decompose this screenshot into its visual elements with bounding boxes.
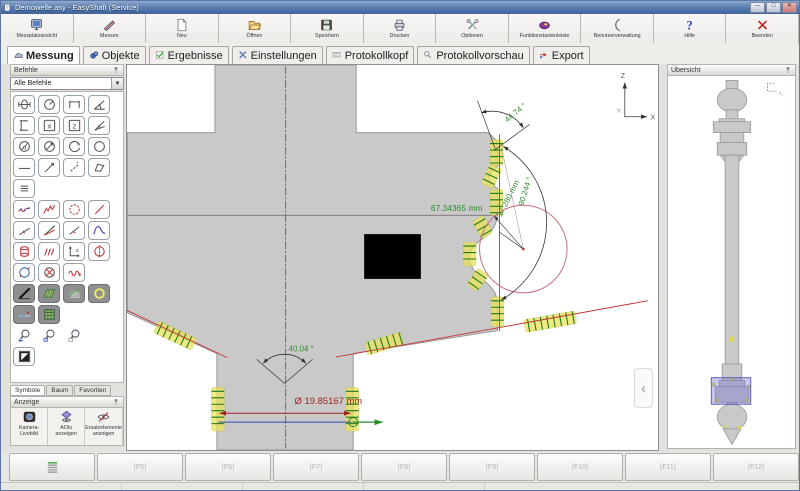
- save-floppy-icon: [319, 18, 334, 32]
- tool-table-button[interactable]: [38, 305, 60, 324]
- function-key-button-4[interactable]: (F8): [361, 453, 447, 481]
- commands-panel-title: Befehle: [14, 67, 38, 74]
- tool-contrast-button[interactable]: [13, 347, 35, 366]
- help-icon: ?: [682, 18, 697, 32]
- tool-midline-button[interactable]: [63, 221, 85, 240]
- dim-angle-arc-label: 90.244 °: [517, 176, 534, 207]
- display-button-kamera[interactable]: Kamera-Livebild: [11, 408, 48, 445]
- tool-ring-button[interactable]: [88, 284, 110, 303]
- perpline-icon: [17, 223, 32, 238]
- profile-icon: [42, 202, 57, 217]
- aoi-eye-icon: [59, 410, 74, 424]
- tool-row: [13, 284, 123, 303]
- tool-circle-arc-button[interactable]: [63, 137, 85, 156]
- tool-row: [13, 326, 123, 345]
- eval-icon: e: [17, 307, 32, 322]
- circle-icon: [92, 139, 107, 154]
- monitor-icon: [29, 18, 44, 32]
- export-tab-icon: [539, 50, 550, 61]
- printer-icon: [392, 18, 407, 32]
- tool-peak-button[interactable]: [88, 221, 110, 240]
- tool-height-button[interactable]: [13, 116, 35, 135]
- tool-crosscircle-button[interactable]: [38, 263, 60, 282]
- tool-hline-button[interactable]: [13, 158, 35, 177]
- posz-icon: z: [67, 118, 82, 133]
- user-admin-icon: [610, 18, 625, 32]
- toolbar-button-drucken[interactable]: Drucken: [364, 14, 437, 43]
- status-segment: [364, 483, 485, 491]
- dim-diameter-label: Ø 19.85167 mm: [295, 396, 363, 407]
- tool-angle2-button[interactable]: [88, 116, 110, 135]
- title-bar: Demowelle.asy - EasyShaft (Service) ─□✕: [1, 1, 799, 14]
- command-filter-dropdown[interactable]: Alle Befehle ▼: [10, 77, 124, 90]
- tools-icon: [465, 18, 480, 32]
- crosscircle-icon: [42, 265, 57, 280]
- pin-icon[interactable]: [112, 66, 120, 74]
- camera-aoi-rect: [364, 234, 421, 279]
- status-segment: [243, 483, 364, 491]
- tool-dashline-button[interactable]: [63, 158, 85, 177]
- overview-map[interactable]: [667, 76, 796, 449]
- function-key-button-5[interactable]: (F9): [449, 453, 535, 481]
- function-key-label: (F6): [222, 464, 235, 471]
- cylinder-icon: [17, 244, 32, 259]
- tool-row: [13, 158, 123, 177]
- objects-tab-icon: [89, 50, 100, 61]
- open-folder-icon: [247, 18, 262, 32]
- fkeys-icon: [537, 18, 552, 32]
- circle-d-icon: d: [17, 139, 32, 154]
- display-buttons: Kamera-LivebildAOIsanzeigenErsatzelement…: [10, 408, 124, 446]
- function-key-button-3[interactable]: (F7): [273, 453, 359, 481]
- toolbar-button-label: Neu: [177, 33, 187, 39]
- toolbar-button-label: Benutzerverwaltung: [594, 33, 641, 39]
- svg-text:Z: Z: [621, 73, 626, 80]
- dim-angle-top-label: 44.74 °: [503, 101, 528, 124]
- tab-export[interactable]: Export: [533, 46, 590, 64]
- table-icon: [42, 307, 57, 322]
- tab-label: Messung: [26, 50, 74, 62]
- tool-circle-button[interactable]: [88, 137, 110, 156]
- tool-spline-button[interactable]: [13, 200, 35, 219]
- tool-coordz-button[interactable]: z: [63, 242, 85, 261]
- height-icon: [17, 118, 32, 133]
- protocol-header-tab-icon: [332, 50, 343, 61]
- anglelines-icon: [42, 223, 57, 238]
- toolbar-button-beenden[interactable]: Beenden: [726, 14, 799, 43]
- layers-icon: [45, 460, 60, 475]
- toolbar-button-label: Beenden: [752, 33, 773, 39]
- display-button-label: AOIsanzeigen: [55, 425, 77, 437]
- display-button-aois[interactable]: AOIsanzeigen: [48, 408, 85, 445]
- toolbar-button-speichern[interactable]: Speichern: [291, 14, 364, 43]
- tab-protokollkopf[interactable]: Protokollkopf: [326, 46, 415, 64]
- angle-arc-90: [501, 147, 546, 300]
- tool-circle-d-button[interactable]: d: [13, 137, 35, 156]
- radius-icon: [42, 97, 57, 112]
- status-bar: [1, 482, 799, 491]
- tab-label: Objekte: [102, 50, 140, 62]
- toolbar-button-label: Drucken: [390, 33, 410, 39]
- zoomwin-icon: [42, 328, 57, 343]
- tool-angle3-button[interactable]: [88, 95, 110, 114]
- tool-zoomfit-button[interactable]: [63, 326, 85, 345]
- tool-row: [13, 347, 123, 366]
- symmetry-icon: [17, 97, 32, 112]
- tab-objekte[interactable]: Objekte: [83, 46, 146, 64]
- radius-leader-line: [494, 216, 523, 249]
- circle-diam-icon: [42, 139, 57, 154]
- function-key-label: (F9): [486, 464, 499, 471]
- zoomback-icon: [17, 328, 32, 343]
- tool-anglelines-button[interactable]: [38, 221, 60, 240]
- toolbar-button-label: Optionen: [461, 33, 483, 39]
- tool-cylinder-button[interactable]: [13, 242, 35, 261]
- tab-label: Einstellungen: [251, 50, 317, 62]
- panel-tab-symbole[interactable]: Symbole: [10, 385, 45, 396]
- svg-text:Y: Y: [617, 109, 621, 115]
- exit-icon: [755, 18, 770, 32]
- tool-row: z: [13, 242, 123, 261]
- scatter-circle-icon: [67, 202, 82, 217]
- hidden-eye-icon: [96, 410, 111, 424]
- tool-wave-button[interactable]: [63, 263, 85, 282]
- main-area: Befehle Alle Befehle ▼ xzdze SymboleBaum…: [1, 64, 800, 451]
- toolbar-button-label: Öffnen: [247, 33, 263, 39]
- tool-row: d: [13, 137, 123, 156]
- hline-icon: [17, 160, 32, 175]
- grooves-icon: [42, 244, 57, 259]
- toolbar-button-label: Funktionstastenleiste: [520, 33, 570, 39]
- tool-grid: xzdze: [10, 91, 124, 383]
- display-button-label: Kamera-Livebild: [19, 425, 39, 437]
- radius-leader-line2: [499, 232, 523, 249]
- tool-row: xz: [13, 116, 123, 135]
- pin-icon[interactable]: [784, 66, 792, 74]
- commands-panel: Befehle Alle Befehle ▼ xzdze SymboleBaum…: [10, 64, 124, 451]
- tool-grooves-button[interactable]: [38, 242, 60, 261]
- toolbar-button-hilfe[interactable]: ?Hilfe: [654, 14, 727, 43]
- width-icon: [67, 97, 82, 112]
- measurement-canvas[interactable]: 67.34365 mm 44.74 ° 90.244 ° 17.280 mm 4…: [126, 64, 659, 451]
- svg-text:e: e: [19, 311, 24, 321]
- overview-viewport-rect[interactable]: [711, 378, 750, 405]
- main-toolbar: MessplatzansichtMessenNeuÖffnenSpeichern…: [1, 14, 799, 44]
- tool-row: e: [13, 305, 123, 324]
- camera-icon: [22, 410, 37, 424]
- tool-scatter-circle-button[interactable]: [63, 200, 85, 219]
- collapse-overview-button[interactable]: ‹: [634, 368, 653, 408]
- display-button-label: Ersatzelementeanzeigen: [85, 425, 122, 437]
- axis-indicator: Z X Y: [617, 73, 656, 122]
- tool-symmetry-button[interactable]: [13, 95, 35, 114]
- toolbar-button-messen[interactable]: Messen: [74, 14, 147, 43]
- function-key-button-1[interactable]: (F5): [97, 453, 183, 481]
- tab-label: Export: [552, 50, 584, 62]
- spline-icon: [17, 202, 32, 217]
- protocol-preview-tab-icon: [423, 50, 434, 61]
- wave-icon: [67, 265, 82, 280]
- formcircle-icon: [17, 265, 32, 280]
- toolbar-button-neu[interactable]: Neu: [146, 14, 219, 43]
- function-key-button-8[interactable]: (F12): [713, 453, 799, 481]
- tool-circle-diam-button[interactable]: [38, 137, 60, 156]
- dashline-icon: [67, 160, 82, 175]
- svg-text:X: X: [651, 115, 656, 122]
- tool-quad-button[interactable]: [88, 158, 110, 177]
- app-window: Demowelle.asy - EasyShaft (Service) ─□✕ …: [0, 0, 800, 491]
- tool-profile-button[interactable]: [38, 200, 60, 219]
- status-segment: [122, 483, 243, 491]
- tab-einstellungen[interactable]: Einstellungen: [232, 46, 323, 64]
- tool-row: [13, 95, 123, 114]
- dirline-icon: [42, 160, 57, 175]
- svg-text:z: z: [75, 248, 78, 254]
- caliper-icon: [102, 18, 117, 32]
- tool-row: [13, 179, 123, 198]
- angle2-icon: [92, 118, 107, 133]
- tool-zoomback-button[interactable]: [13, 326, 35, 345]
- tab-bar: MessungObjekteErgebnisseEinstellungenPro…: [1, 43, 799, 65]
- pin-icon[interactable]: [112, 398, 120, 406]
- overview-panel-title: Übersicht: [671, 67, 701, 74]
- chevron-down-icon[interactable]: ▼: [111, 78, 123, 89]
- display-panel-header: Anzeige: [10, 396, 124, 408]
- tool-arcseg-button[interactable]: [63, 284, 85, 303]
- tool-runout-button[interactable]: [88, 242, 110, 261]
- app-icon: [3, 3, 12, 12]
- tool-dirline-button[interactable]: [38, 158, 60, 177]
- fitline-icon: [92, 202, 107, 217]
- fit-view-icon[interactable]: [767, 83, 782, 95]
- tool-zoomwin-button[interactable]: [38, 326, 60, 345]
- function-key-label: (F8): [398, 464, 411, 471]
- window-minimize-button[interactable]: ─: [750, 2, 765, 13]
- parallel-icon: [17, 181, 32, 196]
- tool-row: [13, 263, 123, 282]
- tab-label: Protokollvorschau: [436, 50, 523, 62]
- runout-icon: [92, 244, 107, 259]
- window-controls: ─□✕: [750, 2, 797, 13]
- svg-text:?: ?: [687, 18, 693, 32]
- display-panel-title: Anzeige: [14, 399, 39, 406]
- tool-posx-button[interactable]: x: [38, 116, 60, 135]
- dim-width-label: 67.34365 mm: [431, 203, 483, 213]
- function-key-bar: (F5)(F6)(F7)(F8)(F9)(F10)(F11)(F12): [1, 452, 799, 482]
- midline-icon: [67, 223, 82, 238]
- toolbar-button-label: Messen: [100, 33, 119, 39]
- arcseg-icon: [67, 286, 82, 301]
- results-tab-icon: [155, 50, 166, 61]
- command-filter-value: Alle Befehle: [14, 80, 51, 87]
- overview-panel-header: Übersicht: [667, 64, 796, 76]
- panel-tab-favoriten[interactable]: Favoriten: [74, 385, 111, 396]
- overview-panel: Übersicht: [667, 64, 796, 451]
- function-key-label: (F7): [310, 464, 323, 471]
- quad-icon: [92, 160, 107, 175]
- tool-eval-button[interactable]: e: [13, 305, 35, 324]
- toolbar-button-benutzerverwaltung[interactable]: Benutzerverwaltung: [581, 14, 654, 43]
- toolbar-button-optionen[interactable]: Optionen: [436, 14, 509, 43]
- tab-messung[interactable]: Messung: [7, 46, 80, 64]
- tool-row: [13, 221, 123, 240]
- function-key-button-7[interactable]: (F11): [625, 453, 711, 481]
- svg-text:x: x: [47, 121, 51, 130]
- dim-cone-angle-label: 40.04 °: [289, 345, 314, 354]
- tool-fitline-button[interactable]: [88, 200, 110, 219]
- contrast-icon: [17, 349, 32, 364]
- panel-tab-baum[interactable]: Baum: [46, 385, 73, 396]
- svg-text:z: z: [72, 121, 76, 130]
- toolbar-button-label: Speichern: [315, 33, 339, 39]
- toolbar-button-messplatzansicht[interactable]: Messplatzansicht: [1, 14, 74, 43]
- function-key-label: (F11): [660, 464, 676, 471]
- circle-arc-icon: [67, 139, 82, 154]
- blackdiag-icon: [17, 286, 32, 301]
- posx-icon: x: [42, 118, 57, 133]
- function-key-label: (F5): [134, 464, 147, 471]
- tab-ergebnisse[interactable]: Ergebnisse: [149, 46, 229, 64]
- function-key-button-6[interactable]: (F10): [537, 453, 623, 481]
- tab-protokollvorschau[interactable]: Protokollvorschau: [417, 46, 529, 64]
- toolbar-button-label: Hilfe: [684, 33, 695, 39]
- function-key-label: (F10): [572, 464, 589, 471]
- window-title: Demowelle.asy - EasyShaft (Service): [15, 3, 139, 12]
- function-key-button-2[interactable]: (F6): [185, 453, 271, 481]
- angle3-icon: [92, 97, 107, 112]
- toolbar-button-öffnen[interactable]: Öffnen: [219, 14, 292, 43]
- new-page-icon: [174, 18, 189, 32]
- tab-label: Ergebnisse: [168, 50, 223, 62]
- tool-formcircle-button[interactable]: [13, 263, 35, 282]
- commands-panel-header: Befehle: [10, 64, 124, 76]
- tool-radius-button[interactable]: [38, 95, 60, 114]
- hatch-icon: [42, 286, 57, 301]
- toolbar-button-label: Messplatzansicht: [16, 33, 57, 39]
- window-maximize-button[interactable]: □: [766, 2, 781, 13]
- function-key-label: (F12): [748, 464, 765, 471]
- shaft-profile: [127, 65, 497, 450]
- measure-tab-icon: [13, 50, 24, 61]
- commands-panel-tabs: SymboleBaumFavoriten: [10, 383, 124, 396]
- settings-tab-icon: [238, 50, 249, 61]
- coordz-icon: z: [67, 244, 82, 259]
- display-button-ersatzelemente[interactable]: Ersatzelementeanzeigen: [85, 408, 123, 445]
- tab-label: Protokollkopf: [345, 50, 409, 62]
- peak-icon: [92, 223, 107, 238]
- tool-perpline-button[interactable]: [13, 221, 35, 240]
- tool-posz-button[interactable]: z: [63, 116, 85, 135]
- function-key-button-0[interactable]: [9, 453, 95, 481]
- tool-row: [13, 200, 123, 219]
- tool-parallel-button[interactable]: [13, 179, 35, 198]
- toolbar-button-funktionstastenleiste[interactable]: Funktionstastenleiste: [509, 14, 582, 43]
- zoomfit-icon: [67, 328, 82, 343]
- status-segment: [1, 483, 122, 491]
- tool-hatch-button[interactable]: [38, 284, 60, 303]
- window-close-button[interactable]: ✕: [782, 2, 797, 13]
- ring-icon: [92, 286, 107, 301]
- tool-width-button[interactable]: [63, 95, 85, 114]
- tool-blackdiag-button[interactable]: [13, 284, 35, 303]
